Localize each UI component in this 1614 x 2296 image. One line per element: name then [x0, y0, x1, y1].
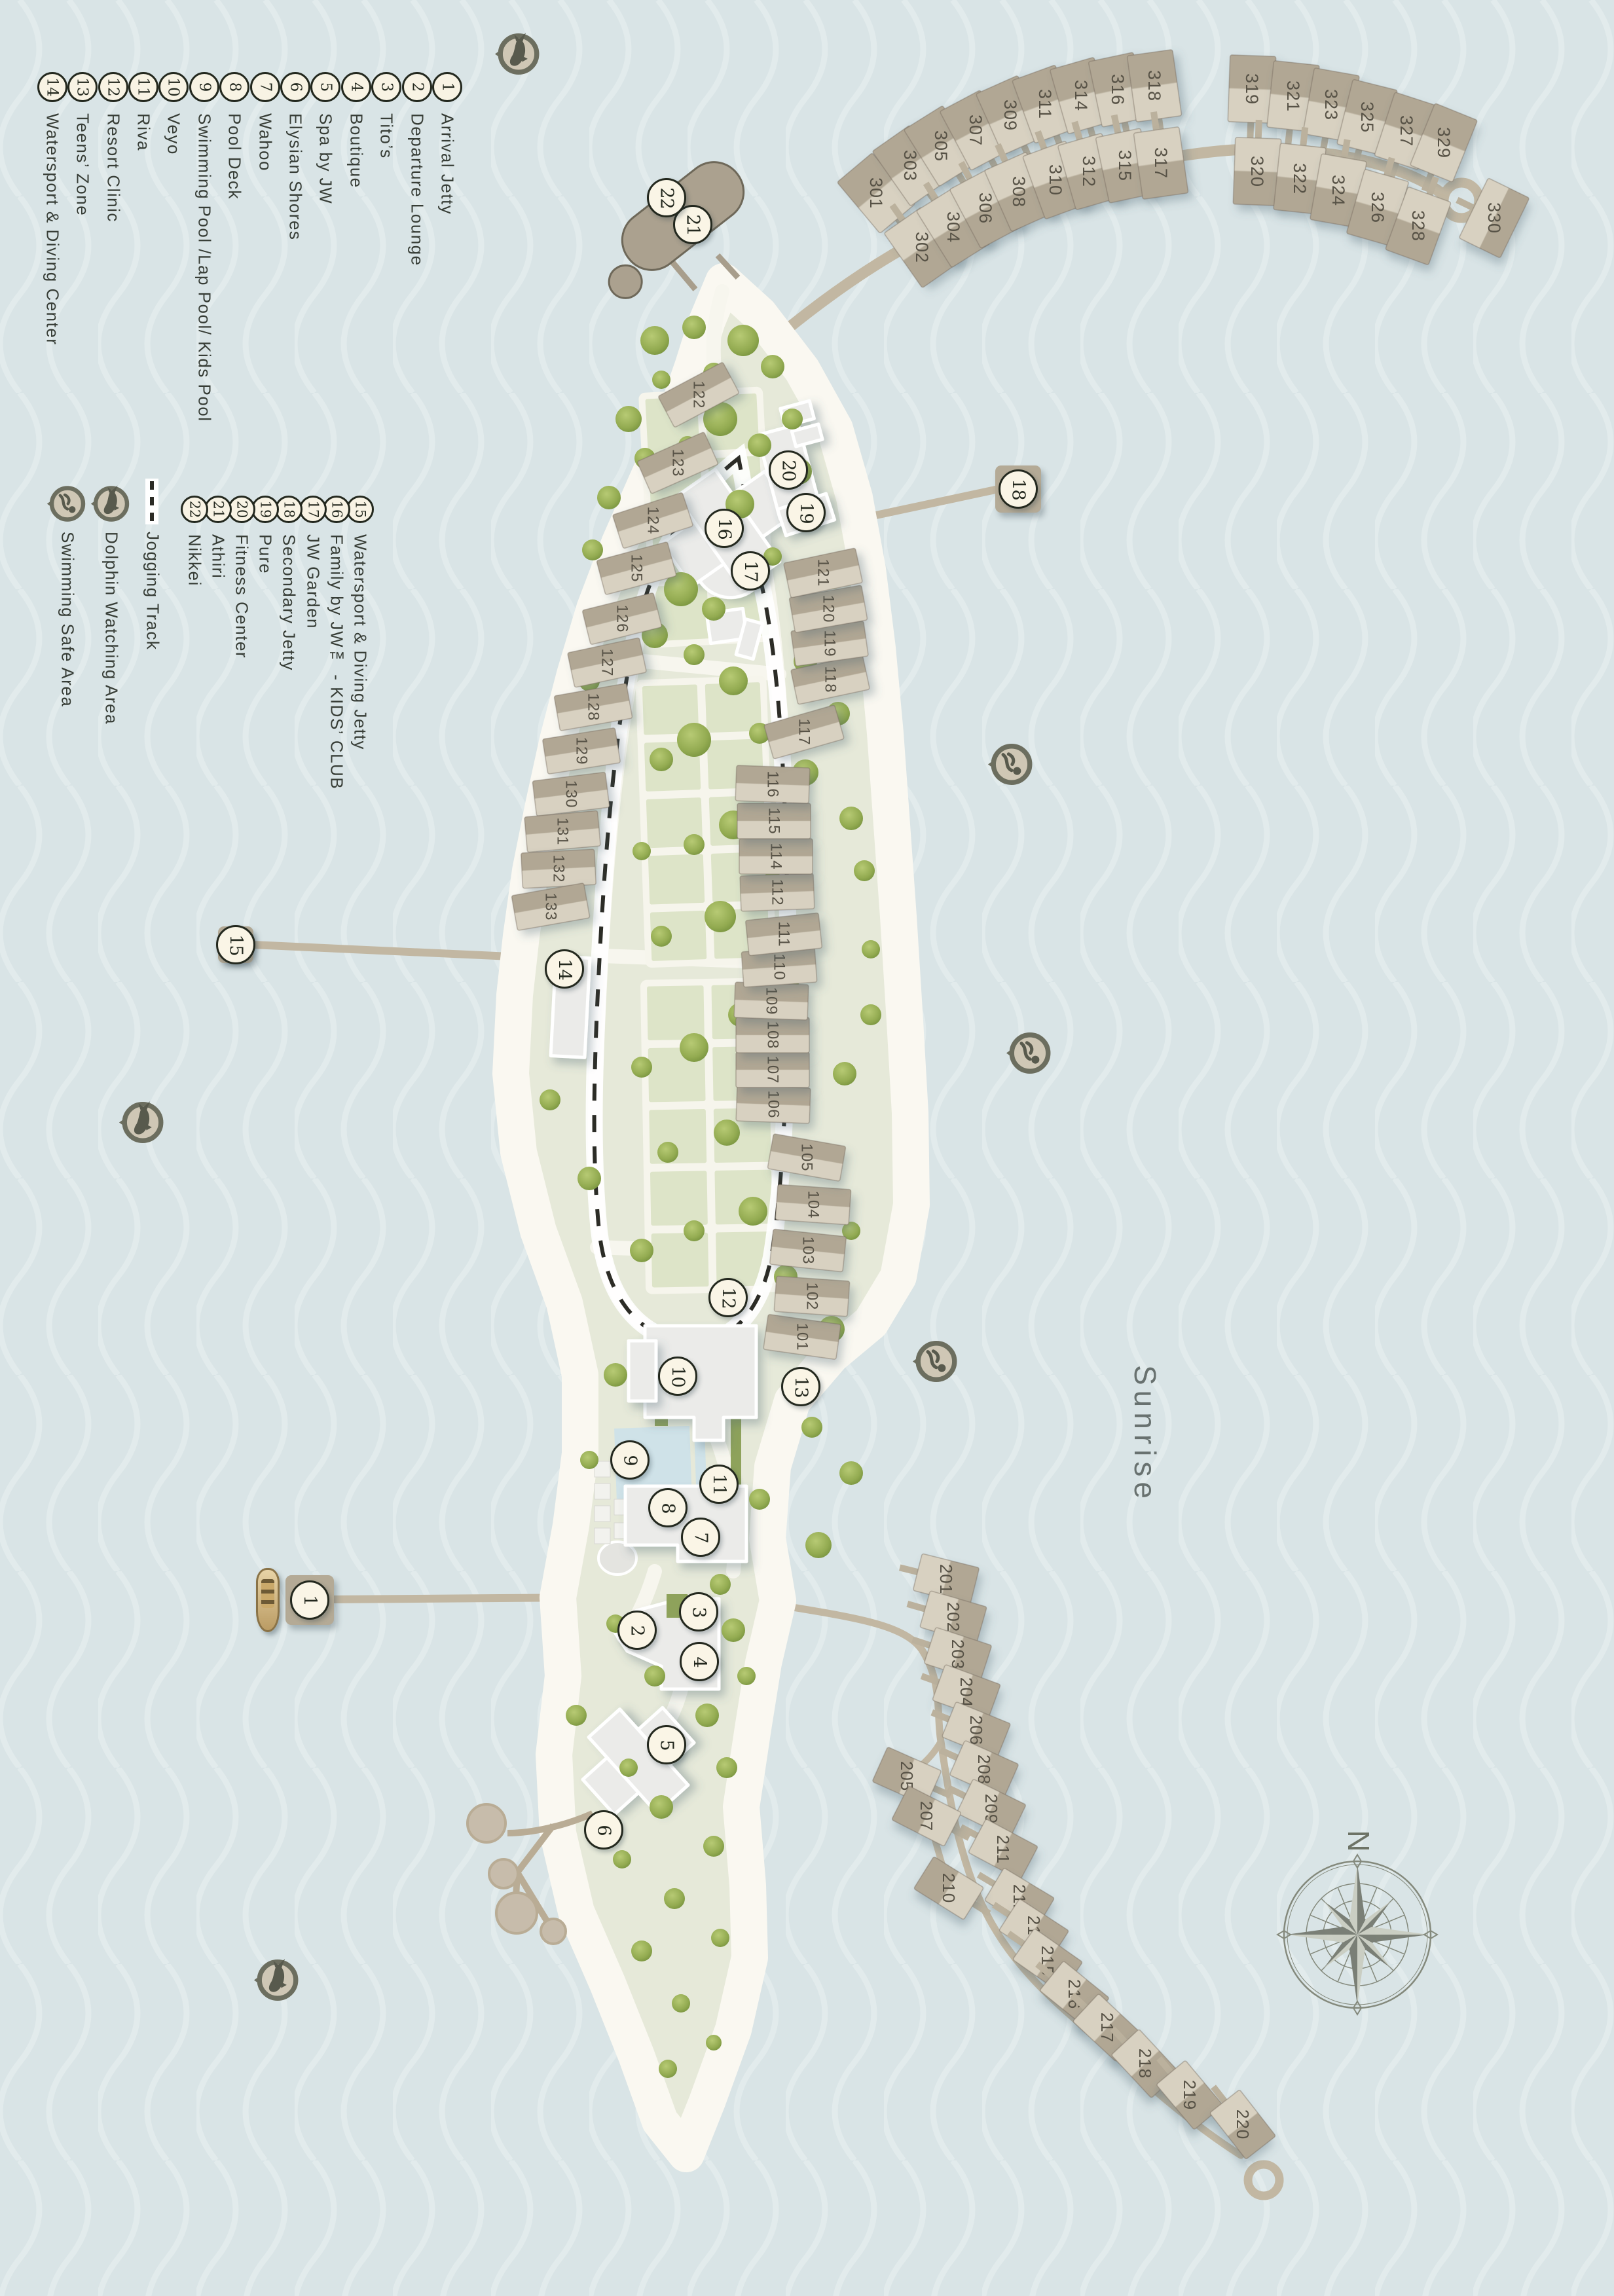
map-marker-1: 1: [290, 1580, 329, 1620]
tree: [631, 1057, 652, 1078]
legend-item-6: 6Elysian Shores: [280, 72, 310, 240]
tree: [604, 1363, 627, 1387]
villa-number: 119: [821, 630, 839, 657]
tree: [640, 326, 669, 355]
legend-swimmer-icon: [46, 483, 88, 528]
legend-item-13: 13Teens’ Zone: [67, 72, 98, 216]
tree: [719, 666, 748, 695]
villa-number: 210: [939, 1873, 959, 1903]
legend-item-label: Spa by JW: [316, 113, 336, 204]
tree: [677, 723, 711, 757]
legend-item-5: 5Spa by JW: [310, 72, 340, 204]
tree: [633, 842, 651, 860]
beach-villa-106: 106: [736, 1085, 811, 1123]
villa-number: 127: [598, 648, 616, 676]
tree: [748, 433, 771, 457]
tree: [705, 901, 736, 932]
tree: [682, 316, 706, 339]
villa-number: 116: [764, 771, 782, 797]
legend-item-20: 20Fitness Center: [230, 496, 253, 659]
legend-item-label: Boutique: [346, 113, 367, 189]
map-marker-2: 2: [617, 1611, 657, 1650]
villa-number: 112: [769, 879, 786, 905]
villa-number: 121: [815, 558, 832, 587]
legend-swimmer-label: Swimming Safe Area: [58, 532, 78, 707]
villa-number: 309: [1000, 100, 1020, 131]
map-marker-8: 8: [648, 1488, 688, 1527]
legend-item-16: 16Family by JW™ - KIDS’ CLUB: [325, 496, 348, 790]
villa-number: 304: [944, 211, 963, 243]
tree: [652, 371, 670, 389]
tree: [706, 2035, 722, 2050]
tree: [613, 1850, 631, 1868]
map-marker-number: 7: [691, 1532, 711, 1542]
legend-item-label: Wahoo: [255, 113, 276, 172]
tree: [650, 1795, 673, 1819]
villa-number: 329: [1434, 127, 1454, 158]
villa-number: 208: [974, 1755, 994, 1785]
tree: [716, 1757, 737, 1778]
legend-item-number: 4: [341, 72, 371, 102]
tree: [566, 1705, 587, 1726]
legend-item-label: Watersport & Diving Center: [43, 113, 63, 345]
tree: [651, 926, 672, 947]
tree: [580, 1451, 598, 1469]
villa-number: 124: [644, 506, 662, 534]
villa-number: 118: [822, 666, 839, 693]
villa-number: 314: [1071, 80, 1091, 111]
map-marker-number: 3: [689, 1607, 709, 1617]
tree: [862, 940, 880, 958]
legend-item-19: 19Pure: [253, 496, 277, 574]
legend-item-number: 3: [371, 72, 401, 102]
legend-item-number: 19: [251, 496, 279, 523]
legend-item-label: Nikkei: [185, 534, 205, 587]
villa-number: 308: [1009, 176, 1029, 208]
legend-item-14: 14Watersport & Diving Center: [37, 72, 67, 345]
map-marker-12: 12: [708, 1278, 748, 1317]
map-marker-6: 6: [584, 1810, 623, 1850]
villa-number: 110: [771, 953, 788, 980]
tree: [630, 1239, 653, 1262]
map-marker-number: 13: [790, 1376, 811, 1397]
villa-number: 105: [798, 1143, 816, 1171]
compass-north-label: N: [1348, 1823, 1369, 1859]
legend-item-label: Riva: [134, 113, 154, 151]
map-marker-number: 11: [708, 1474, 729, 1495]
villa-number: 115: [765, 807, 783, 834]
villa-number: 302: [912, 232, 932, 263]
legend-item-label: Arrival Jetty: [437, 113, 458, 215]
villa-number: 310: [1046, 164, 1065, 196]
villa-number: 132: [550, 854, 568, 883]
villa-number: 323: [1321, 89, 1341, 120]
beach-villa-109: 109: [734, 982, 809, 1020]
villa-number: 114: [767, 843, 785, 869]
map-marker-number: 2: [627, 1625, 648, 1635]
map-marker-number: 10: [667, 1366, 688, 1387]
tree: [578, 1167, 601, 1190]
map-marker-number: 6: [594, 1825, 614, 1835]
legend-item-label: Departure Lounge: [407, 113, 428, 266]
tree: [684, 834, 705, 855]
map-marker-number: 19: [796, 502, 816, 523]
dolphin-watching-icon: [494, 30, 543, 82]
beach-villa-104: 104: [775, 1184, 851, 1225]
map-base: 3013033053073093113143163183193213233253…: [0, 0, 1614, 2296]
map-marker-number: 9: [620, 1455, 640, 1465]
legend-item-number: 11: [128, 72, 158, 102]
legend-item-label: Pool Deck: [225, 113, 245, 200]
legend-item-number: 21: [204, 496, 232, 523]
tree: [619, 1758, 638, 1777]
villa-number: 318: [1145, 70, 1164, 101]
legend-item-label: Tito’s: [376, 113, 397, 159]
villa-number: 315: [1115, 150, 1135, 181]
legend-item-10: 10Veyo: [158, 72, 189, 155]
beach-villa-107: 107: [736, 1052, 809, 1087]
villa-number: 123: [669, 448, 687, 477]
legend-item-number: 17: [299, 496, 327, 523]
villa-number: 125: [628, 554, 646, 582]
map-marker-4: 4: [680, 1642, 719, 1681]
legend-item-label: Swimming Pool /Lap Pool/ Kids Pool: [194, 113, 215, 422]
tree: [737, 1667, 756, 1685]
villa-number: 326: [1368, 192, 1387, 223]
beach-villa-115: 115: [737, 803, 811, 839]
map-marker-number: 4: [689, 1656, 710, 1667]
legend-item-17: 17JW Garden: [301, 496, 325, 629]
map-marker-19: 19: [786, 493, 826, 532]
legend-item-number: 20: [228, 496, 255, 523]
villa-number: 202: [944, 1602, 963, 1632]
map-marker-3: 3: [679, 1592, 718, 1631]
villa-number: 104: [805, 1190, 822, 1218]
legend-item-number: 1: [432, 72, 462, 102]
legend-item-7: 7Wahoo: [250, 72, 280, 172]
legend-item-label: Teens’ Zone: [73, 113, 93, 216]
villa-number: 103: [799, 1236, 817, 1264]
tree: [722, 1618, 745, 1642]
tree: [782, 409, 803, 429]
tree: [597, 486, 621, 509]
map-marker-15: 15: [216, 925, 255, 964]
villa-number: 325: [1357, 101, 1377, 133]
legend-item-number: 15: [346, 496, 374, 523]
legend-item-number: 12: [98, 72, 128, 102]
tree: [839, 1461, 863, 1485]
tree: [540, 1089, 560, 1110]
villa-number: 108: [764, 1021, 782, 1049]
villa-number: 327: [1397, 115, 1416, 147]
legend-item-label: Secondary Jetty: [279, 534, 299, 671]
map-marker-7: 7: [681, 1518, 720, 1557]
villa-number: 203: [948, 1639, 968, 1669]
villa-number: 106: [765, 1090, 782, 1118]
map-marker-number: 14: [554, 958, 574, 979]
tree: [739, 1197, 767, 1226]
sunrise-label: Sunrise: [1128, 1365, 1163, 1504]
legend-item-number: 8: [219, 72, 249, 102]
building-main-wing: [629, 1341, 656, 1401]
tree: [749, 1489, 770, 1510]
map-marker-number: 15: [225, 934, 246, 955]
map-marker-number: 22: [656, 187, 676, 208]
villa-number: 102: [803, 1282, 821, 1310]
map-marker-14: 14: [545, 949, 584, 989]
swimming-safe-icon: [1006, 1029, 1054, 1081]
villa-number: 305: [931, 130, 951, 162]
villa-number: 205: [897, 1761, 917, 1791]
villa-number: 330: [1484, 202, 1504, 234]
tree: [805, 1532, 832, 1558]
villa-number: 207: [917, 1801, 936, 1831]
tree: [631, 1941, 652, 1961]
villa-number: 220: [1233, 2109, 1253, 2140]
tree: [650, 748, 673, 771]
legend-item-11: 11Riva: [128, 72, 158, 151]
map-marker-18: 18: [999, 469, 1038, 509]
map-marker-number: 20: [778, 460, 798, 481]
map-marker-number: 16: [714, 518, 734, 539]
tree: [703, 1836, 724, 1857]
tree: [684, 1220, 705, 1241]
villa-number: 120: [820, 594, 837, 623]
legend-item-number: 2: [402, 72, 432, 102]
legend-item-15: 15Watersport & Diving Jetty: [348, 496, 372, 750]
legend-item-22: 22Nikkei: [183, 496, 206, 587]
legend-item-number: 7: [250, 72, 280, 102]
beach-villa-108: 108: [736, 1017, 809, 1053]
tree: [644, 1666, 665, 1686]
tree: [695, 1704, 719, 1727]
tree: [839, 807, 863, 830]
map-marker-10: 10: [658, 1357, 697, 1396]
tree: [761, 355, 784, 378]
villa-number: 301: [866, 177, 886, 209]
beach-villa-131: 131: [524, 811, 600, 852]
jogging-track-symbol: [145, 479, 158, 524]
map-marker-number: 1: [300, 1595, 320, 1605]
villa-number: 131: [554, 817, 572, 845]
villa-number: 109: [763, 987, 780, 1015]
villa-number: 209: [981, 1794, 1001, 1824]
map-marker-number: 21: [682, 214, 703, 235]
legend-dolphin-label: Dolphin Watching Area: [101, 532, 122, 725]
legend-dolphin-icon: [90, 483, 132, 528]
legend-jogging-label: Jogging Track: [143, 532, 163, 650]
villa-number: 303: [900, 150, 920, 181]
tree: [664, 1888, 685, 1909]
villa-number: 324: [1329, 175, 1348, 206]
villa-number: 111: [775, 921, 793, 947]
beach-villa-103: 103: [769, 1229, 846, 1271]
legend-item-label: Watersport & Diving Jetty: [350, 534, 371, 750]
villa-number: 129: [573, 737, 591, 765]
legend-item-label: Elysian Shores: [285, 113, 306, 240]
legend-item-number: 10: [158, 72, 189, 102]
legend-item-number: 16: [323, 496, 350, 523]
villa-number: 311: [1035, 89, 1055, 119]
beach-villa-114: 114: [739, 839, 813, 874]
map-marker-number: 12: [718, 1287, 738, 1308]
beach-villa-132: 132: [521, 849, 596, 888]
legend-item-2: 2Departure Lounge: [402, 72, 432, 266]
villa-number: 316: [1108, 74, 1128, 105]
legend-item-label: Resort Clinic: [103, 113, 124, 223]
villa-number: 322: [1290, 163, 1310, 194]
dolphin-watching-icon: [119, 1099, 167, 1150]
villa-number: 107: [764, 1055, 782, 1084]
legend-item-label: Fitness Center: [232, 534, 252, 659]
tree: [710, 1574, 731, 1595]
resort-island-map: 3013033053073093113143163183193213233253…: [0, 0, 1614, 2296]
legend-item-number: 6: [280, 72, 310, 102]
tree: [854, 860, 875, 881]
villa-number: 320: [1247, 156, 1267, 187]
map-marker-20: 20: [769, 450, 808, 490]
legend-item-number: 22: [181, 496, 208, 523]
villa-number: 206: [966, 1715, 986, 1745]
legend-item-label: Pure: [255, 534, 276, 574]
tree: [714, 1120, 740, 1146]
tree: [711, 1929, 729, 1947]
legend-item-21: 21Athiri: [206, 496, 230, 579]
tree: [833, 1062, 856, 1085]
tree: [659, 2060, 677, 2078]
legend-item-3: 3Tito’s: [371, 72, 401, 159]
legend-item-number: 13: [67, 72, 98, 102]
tree: [684, 644, 705, 665]
tree: [672, 1994, 690, 2013]
villa-number: 307: [966, 115, 985, 146]
beach-villa-116: 116: [735, 765, 810, 803]
legend-item-number: 14: [37, 72, 67, 102]
arrival-boat: [256, 1568, 280, 1632]
legend-item-9: 9Swimming Pool /Lap Pool/ Kids Pool: [189, 72, 219, 422]
map-marker-5: 5: [647, 1725, 686, 1764]
legend-item-12: 12Resort Clinic: [98, 72, 128, 223]
tree: [801, 1417, 822, 1438]
tree: [657, 1142, 678, 1163]
map-marker-number: 8: [658, 1503, 678, 1513]
map-marker-16: 16: [705, 509, 744, 548]
tree: [582, 539, 603, 560]
map-marker-9: 9: [610, 1440, 650, 1480]
map-marker-number: 17: [740, 560, 760, 581]
swimming-safe-icon: [912, 1338, 961, 1389]
villa-number: 101: [794, 1322, 811, 1351]
map-marker-number: 18: [1008, 479, 1028, 500]
legend-item-1: 1Arrival Jetty: [432, 72, 462, 215]
legend-item-number: 5: [310, 72, 340, 102]
map-marker-number: 5: [657, 1740, 677, 1750]
beach-villa-112: 112: [740, 873, 815, 911]
tree: [702, 597, 725, 621]
villa-number: 128: [585, 693, 602, 721]
villa-number: 117: [796, 718, 813, 745]
tree: [615, 406, 642, 432]
legend-item-label: Athiri: [208, 534, 229, 579]
tree: [860, 1004, 881, 1025]
villa-number: 133: [542, 892, 560, 920]
legend-item-label: JW Garden: [303, 534, 323, 629]
villa-number: 317: [1151, 147, 1171, 179]
legend-item-number: 18: [275, 496, 303, 523]
map-marker-17: 17: [731, 551, 770, 591]
villa-number: 122: [690, 380, 708, 409]
legend-item-label: Veyo: [164, 113, 184, 155]
tree: [727, 325, 759, 356]
tree: [680, 1033, 708, 1062]
swimming-safe-icon: [987, 740, 1036, 792]
beach-villa-111: 111: [745, 913, 822, 955]
villa-number: 130: [562, 780, 580, 808]
villa-number: 126: [614, 604, 631, 632]
villa-number: 218: [1135, 2049, 1155, 2079]
villa-number: 312: [1079, 156, 1099, 187]
villa-number: 319: [1242, 73, 1262, 105]
dolphin-watching-icon: [253, 1956, 302, 2008]
villa-number: 328: [1408, 210, 1428, 242]
villa-number: 219: [1180, 2080, 1200, 2110]
villa-number: 201: [936, 1564, 956, 1594]
legend-item-4: 4Boutique: [341, 72, 371, 189]
villa-number: 321: [1283, 81, 1303, 112]
map-marker-13: 13: [781, 1367, 820, 1406]
legend-item-8: 8Pool Deck: [219, 72, 249, 200]
legend-item-label: Family by JW™ - KIDS’ CLUB: [327, 534, 347, 790]
beach-villa-102: 102: [774, 1276, 849, 1317]
villa-number: 211: [993, 1835, 1013, 1864]
legend-item-18: 18Secondary Jetty: [277, 496, 301, 671]
villa-number: 306: [976, 192, 995, 224]
legend-item-number: 9: [189, 72, 219, 102]
map-marker-11: 11: [699, 1465, 739, 1504]
map-marker-22: 22: [647, 178, 686, 217]
